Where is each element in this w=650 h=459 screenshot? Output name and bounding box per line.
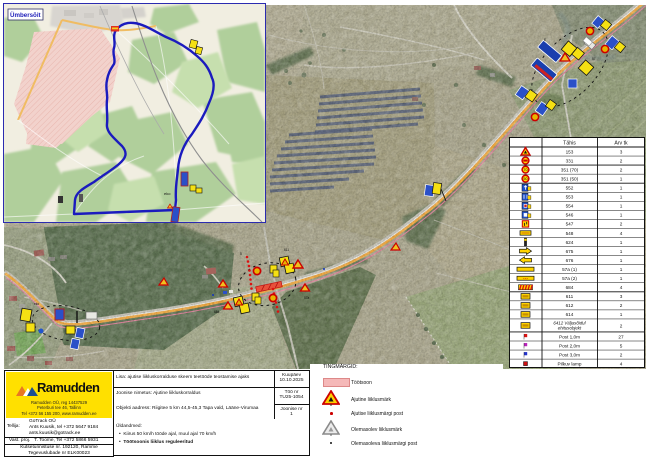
svg-text:684: 684 [214, 310, 220, 314]
svg-text:553: 553 [566, 195, 574, 200]
svg-text:4: 4 [620, 231, 623, 236]
svg-text:2: 2 [620, 352, 623, 357]
svg-text:Post 2,0m: Post 2,0m [559, 343, 580, 348]
svg-text:611: 611 [566, 294, 574, 299]
svg-text:684: 684 [566, 285, 574, 290]
svg-text:×××: ××× [523, 276, 529, 280]
svg-text:2: 2 [620, 167, 623, 172]
svg-text:eko: eko [34, 302, 39, 306]
svg-text:676: 676 [566, 258, 574, 263]
svg-text:1: 1 [620, 312, 623, 317]
svg-text:Tähis: Tähis [563, 141, 576, 147]
svg-text:ehitusobjekt: ehitusobjekt [558, 325, 582, 330]
svg-text:5: 5 [620, 343, 623, 348]
svg-text:547: 547 [566, 222, 574, 227]
svg-text:1: 1 [620, 195, 623, 200]
svg-text:552: 552 [566, 186, 574, 191]
svg-text:5: 5 [240, 252, 242, 256]
svg-text:70: 70 [523, 168, 527, 172]
svg-text:2: 2 [620, 222, 623, 227]
svg-text:2: 2 [620, 158, 623, 163]
svg-text:Post 3,0m: Post 3,0m [559, 352, 580, 357]
svg-text:3: 3 [620, 149, 623, 154]
svg-text:1: 1 [620, 258, 623, 263]
svg-text:E: E [544, 38, 546, 42]
svg-text:1: 1 [620, 267, 623, 272]
svg-text:4: 4 [620, 285, 623, 290]
svg-text:eko: eko [164, 191, 171, 196]
svg-text:614: 614 [566, 312, 574, 317]
svg-text:2: 2 [620, 323, 623, 328]
svg-text:2: 2 [620, 303, 623, 308]
svg-text:Arv tk: Arv tk [614, 141, 628, 147]
svg-text:27: 27 [618, 334, 624, 339]
svg-text:612: 612 [566, 303, 574, 308]
svg-text:1: 1 [620, 249, 623, 254]
svg-text:1: 1 [620, 276, 623, 281]
svg-text:57a (2): 57a (2) [562, 276, 577, 281]
svg-text:351 (50): 351 (50) [561, 177, 579, 182]
svg-text:351 (70): 351 (70) [561, 167, 579, 172]
svg-text:548: 548 [566, 231, 574, 236]
svg-text:1: 1 [620, 240, 623, 245]
svg-text:Post 1,0m: Post 1,0m [559, 334, 580, 339]
svg-text:1: 1 [620, 204, 623, 209]
svg-text:1: 1 [620, 177, 623, 182]
svg-text:624: 624 [566, 240, 574, 245]
svg-text:3: 3 [620, 294, 623, 299]
svg-text:Ümbersõit: Ümbersõit [10, 12, 41, 19]
svg-text:57a (1): 57a (1) [562, 267, 577, 272]
svg-text:554: 554 [566, 204, 574, 209]
svg-text:331: 331 [566, 158, 574, 163]
svg-text:153: 153 [566, 149, 574, 154]
svg-text:4: 4 [620, 361, 623, 366]
svg-text:57a: 57a [304, 296, 310, 300]
svg-text:50: 50 [523, 177, 527, 181]
svg-text:1: 1 [620, 186, 623, 191]
svg-text:611: 611 [284, 248, 289, 252]
svg-text:1: 1 [620, 213, 623, 218]
svg-text:546: 546 [566, 213, 574, 218]
svg-text:675: 675 [566, 249, 574, 254]
svg-text:Pilkuv lamp: Pilkuv lamp [558, 361, 582, 366]
svg-text:57: 57 [592, 57, 596, 61]
